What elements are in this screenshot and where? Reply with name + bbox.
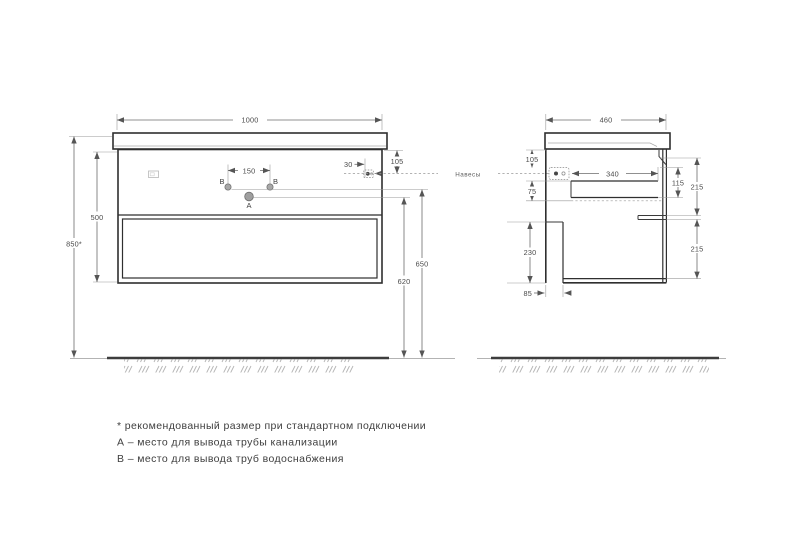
- dim-front-width-value: 1000: [241, 116, 258, 125]
- dim-side-depth-value: 460: [600, 116, 613, 125]
- dim-front-width: 1000: [117, 114, 382, 130]
- hangers-centerline: Навесы: [344, 171, 549, 178]
- dim-water-height-value: 650: [416, 259, 429, 268]
- dim-drain-height: 620: [392, 198, 416, 358]
- dim-front-top-offset-value: 105: [391, 157, 404, 166]
- side-drawer-box: [571, 181, 663, 201]
- front-countertop: [113, 133, 387, 149]
- side-rail-bracket: [638, 216, 666, 220]
- hangers-label: Навесы: [455, 171, 481, 178]
- dim-side-top-offset: 105: [521, 150, 546, 168]
- dim-front-top-offset: 105: [384, 151, 408, 174]
- water-hole-left-label: B: [219, 177, 224, 186]
- dim-hanger-offset-value: 30: [344, 160, 353, 169]
- dim-water-height: 650: [410, 190, 434, 358]
- front-lower-drawer: [123, 219, 378, 278]
- dim-front-overall-height: 850*: [61, 137, 112, 358]
- dim-side-top-offset-value: 105: [526, 155, 539, 164]
- dim-side-lower-section-value: 215: [691, 245, 704, 254]
- side-countertop: [545, 133, 670, 149]
- dim-side-lower-section: 215: [666, 220, 706, 279]
- dim-side-back-gap: 85: [523, 285, 571, 298]
- vanity-dimension-drawing: B B A 1000 500 850*: [0, 0, 790, 558]
- water-hole-right-label: B: [273, 177, 278, 186]
- floor-right: [477, 358, 726, 373]
- brand-logo-mark: [149, 171, 159, 178]
- water-hole-left: [225, 184, 231, 190]
- wall-hanger-marker-side: [549, 168, 569, 180]
- dim-side-upper-section-value: 215: [691, 183, 704, 192]
- floor-hatching-left: [124, 360, 356, 373]
- technical-drawing-page: B B A 1000 500 850*: [0, 0, 790, 558]
- footnotes: * рекомендованный размер при стандартном…: [117, 420, 426, 465]
- dim-side-back-gap-value: 85: [523, 289, 532, 298]
- side-cabinet-outline: [545, 133, 670, 283]
- dim-side-hanger-drawer-value: 115: [672, 179, 684, 188]
- dim-hanger-offset: 30: [344, 159, 382, 178]
- side-basin-profile: [548, 143, 657, 147]
- dim-front-overall-height-value: 850*: [66, 239, 82, 248]
- drain-hole: [245, 192, 254, 201]
- floor-hatching-right: [499, 360, 709, 373]
- dim-holes-spacing-value: 150: [243, 166, 256, 175]
- footnote-water-location: В – место для вывода труб водоснабжения: [117, 453, 344, 465]
- dim-side-lower-drawer: 230: [507, 222, 546, 283]
- footnote-drain-location: А – место для вывода трубы канализации: [117, 437, 338, 449]
- footnote-recommended-size: * рекомендованный размер при стандартном…: [117, 420, 426, 432]
- dim-side-drawer-height-value: 75: [528, 187, 537, 196]
- dim-side-interior-depth-value: 340: [606, 170, 619, 179]
- dim-front-cabinet-height: 500: [86, 152, 117, 282]
- dim-front-cabinet-height-value: 500: [91, 213, 104, 222]
- dim-holes-spacing: 150: [228, 165, 270, 184]
- dim-side-lower-drawer-value: 230: [524, 248, 537, 257]
- side-view: 460 105 75 340: [507, 114, 707, 298]
- floor-left: [70, 358, 455, 373]
- dim-drain-height-value: 620: [398, 277, 411, 286]
- dim-side-drawer-height: 75: [524, 181, 571, 201]
- dim-side-interior-depth: 340: [572, 167, 658, 181]
- dim-side-depth: 460: [546, 114, 666, 130]
- drain-hole-label: A: [246, 201, 251, 210]
- front-view: B B A 1000 500 850*: [61, 114, 434, 358]
